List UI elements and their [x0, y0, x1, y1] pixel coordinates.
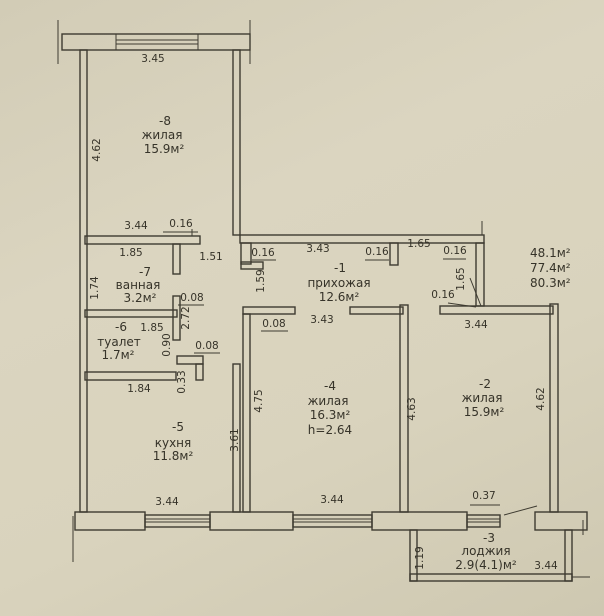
room8-number: -8 — [159, 114, 171, 128]
wall-wc-pier-tail — [196, 364, 203, 380]
dim-kitchen-right: 3.61 — [229, 428, 241, 451]
pier — [372, 512, 467, 530]
dim-room4-top: 3.43 — [310, 314, 333, 326]
dim-top-window: 3.45 — [141, 53, 164, 65]
wall-bath-right-lower — [173, 296, 180, 340]
kitchen-number: -5 — [172, 420, 184, 434]
dim-wall-016: 0.16 — [169, 218, 193, 230]
floor-plan-drawing: 3.45 3.44 0.16 1.85 1.51 0.08 1.85 0.08 … — [0, 0, 604, 616]
dim-room4-right: 4.63 — [406, 397, 418, 420]
wc-area: 1.7м² — [102, 348, 135, 362]
wall-room2-right — [550, 304, 558, 512]
dim-bath-door: 0.08 — [180, 292, 203, 304]
dim-shaft-height: 2.72 — [180, 306, 192, 329]
wall-wc-pier — [177, 356, 203, 364]
bathroom-number: -7 — [139, 265, 151, 279]
wall-bath-right-upper — [173, 244, 180, 274]
dim-room4-window: 3.44 — [320, 494, 344, 506]
room8-area: 15.9м² — [144, 142, 185, 156]
total-useful-area: 77.4м² — [530, 261, 571, 275]
dim-room8-height: 4.62 — [91, 138, 103, 161]
dim-kitchen-top: 1.84 — [127, 383, 151, 395]
dim-hall-stub2: 0.16 — [443, 245, 467, 257]
wall-wc-bottom — [85, 372, 176, 380]
dim-wc-door: 0.90 — [161, 333, 173, 356]
window-balcony — [467, 515, 500, 527]
wall-room2-top — [440, 306, 553, 314]
dim-wc-width: 1.85 — [140, 322, 163, 334]
pier — [210, 512, 293, 530]
bathroom-area: 3.2м² — [124, 291, 157, 305]
room4-name: жилая — [308, 394, 349, 408]
room2-area: 15.9м² — [464, 405, 505, 419]
wall-left-exterior — [80, 50, 87, 512]
window-room4 — [293, 515, 372, 527]
pier — [535, 512, 587, 530]
dim-corridor-width: 1.51 — [199, 251, 222, 263]
dim-room4-pier: 0.08 — [262, 318, 285, 330]
total-areas: 48.1м² 77.4м² 80.3м² — [530, 246, 571, 290]
dim-hall-top: 3.43 — [306, 243, 329, 255]
wall-hall-stub — [390, 243, 398, 265]
room2-number: -2 — [479, 377, 491, 391]
hallway-area: 12.6м² — [319, 290, 360, 304]
wall-wc-top — [85, 310, 177, 317]
wall-hall-top — [240, 235, 484, 243]
room-walls — [243, 304, 558, 512]
dim-wc-step: 0.33 — [176, 370, 188, 393]
dim-wc-wall: 0.08 — [195, 340, 218, 352]
pier — [75, 512, 145, 530]
kitchen-name: кухня — [155, 436, 192, 450]
dim-room2-right: 4.62 — [535, 387, 547, 410]
dim-hall-right: 1.65 — [455, 267, 467, 290]
wall-room8-right — [233, 50, 240, 235]
window-band-top — [62, 34, 250, 50]
loggia-name: лоджия — [461, 544, 510, 558]
dim-bath-top: 3.44 — [124, 220, 148, 232]
wall-room4-top-right — [350, 307, 403, 314]
dim-loggia-left: 1.19 — [414, 546, 426, 569]
dimension-lines — [163, 232, 500, 505]
wall-hall-left-foot — [241, 262, 263, 269]
hallway-name: прихожая — [307, 276, 370, 290]
dim-loggia-bottom: 3.44 — [534, 560, 558, 572]
loggia-area: 2.9(4.1)м² — [455, 558, 517, 572]
room8-name: жилая — [142, 128, 183, 142]
dim-hall-stub: 0.16 — [365, 246, 389, 258]
dim-bath-width: 1.85 — [119, 247, 142, 259]
scanned-floor-plan: 3.45 3.44 0.16 1.85 1.51 0.08 1.85 0.08 … — [0, 0, 604, 616]
dim-hall-left-wall: 0.16 — [251, 247, 275, 259]
room4-number: -4 — [324, 379, 336, 393]
dim-kitchen-window: 3.44 — [155, 496, 179, 508]
hallway-number: -1 — [334, 261, 346, 275]
window-kitchen — [145, 515, 210, 527]
room2-name: жилая — [462, 391, 503, 405]
bathroom-name: ванная — [116, 278, 161, 292]
room4-ceiling: h=2.64 — [308, 423, 352, 437]
dim-room2-top: 3.44 — [464, 319, 488, 331]
wall-room4-left — [243, 314, 250, 512]
dim-room4-left: 4.75 — [253, 389, 265, 412]
wc-number: -6 — [115, 320, 127, 334]
wall-loggia-bottom — [410, 574, 572, 581]
dim-hall-top2: 1.65 — [407, 238, 430, 250]
dim-bath-height: 1.74 — [89, 276, 101, 300]
dim-balcony-window: 0.37 — [472, 490, 495, 502]
dim-room2-wall: 0.16 — [431, 289, 455, 301]
wall-hall-left — [241, 243, 251, 264]
door-swing-balcony — [504, 506, 537, 515]
wall-room4-top-left — [243, 307, 295, 314]
kitchen-area: 11.8м² — [153, 449, 194, 463]
wall-bath-top — [85, 236, 200, 244]
loggia-number: -3 — [483, 531, 495, 545]
total-living-area: 48.1м² — [530, 246, 571, 260]
dim-hall-left: 1.59 — [255, 269, 267, 292]
total-area: 80.3м² — [530, 276, 571, 290]
room4-area: 16.3м² — [310, 408, 351, 422]
wc-name: туалет — [97, 335, 141, 349]
bathroom-walls — [85, 229, 240, 512]
